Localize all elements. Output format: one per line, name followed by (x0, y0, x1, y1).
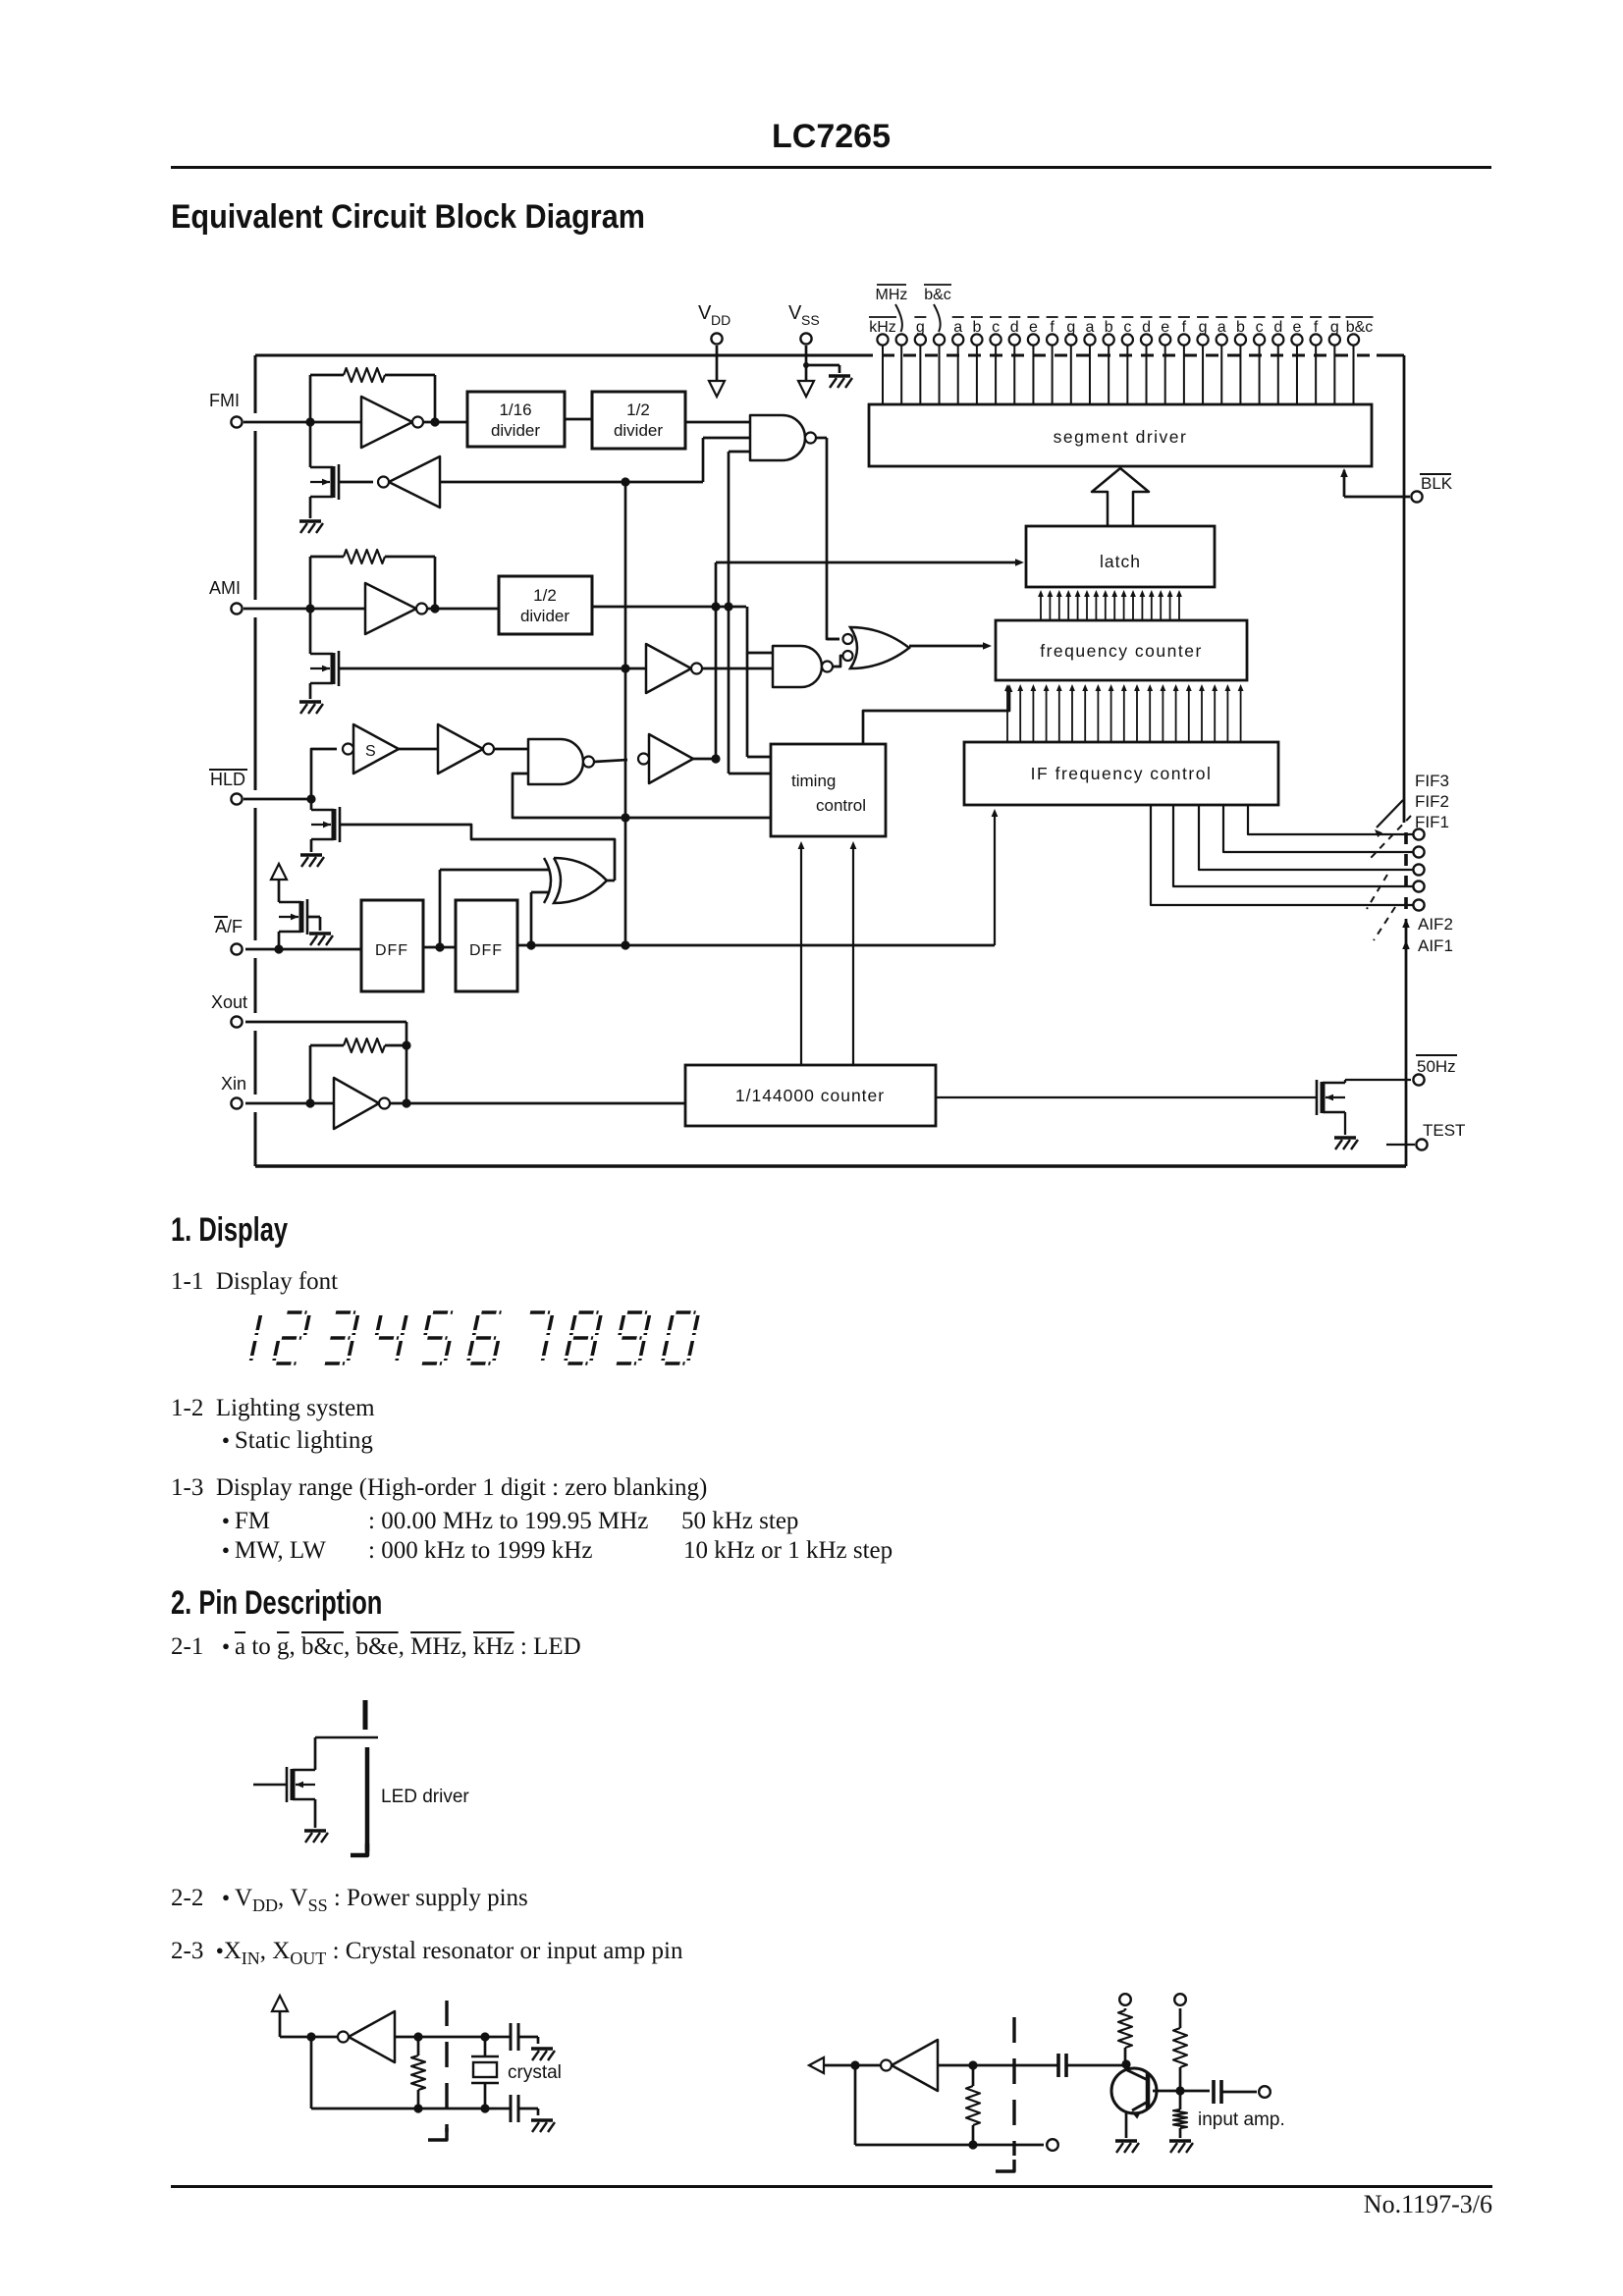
svg-text:LED driver: LED driver (381, 1787, 469, 1807)
svg-text:AMI: AMI (209, 578, 241, 598)
svg-text:1/2: 1/2 (626, 400, 650, 419)
svg-text:Xin: Xin (221, 1074, 246, 1094)
svg-text:b: b (1236, 319, 1245, 336)
svg-text:f: f (1314, 319, 1319, 336)
svg-text:g: g (1199, 319, 1208, 336)
svg-text:1/144000 counter: 1/144000 counter (735, 1086, 885, 1105)
svg-text:1/16: 1/16 (499, 400, 531, 419)
svg-text:FIF1: FIF1 (1415, 813, 1449, 831)
svg-text:latch: latch (1100, 552, 1141, 571)
svg-text:crystal: crystal (508, 2062, 562, 2083)
svg-text:HLD: HLD (210, 770, 245, 789)
svg-text:control: control (816, 796, 866, 815)
svg-text:b&c: b&c (1346, 319, 1374, 336)
svg-text:b&c: b&c (924, 287, 951, 303)
svg-text:divider: divider (491, 421, 540, 440)
svg-text:S: S (365, 743, 376, 760)
svg-text:segment driver: segment driver (1054, 427, 1188, 447)
svg-text:Xout: Xout (211, 992, 247, 1012)
svg-text:a: a (1086, 319, 1095, 336)
svg-text:FIF3: FIF3 (1415, 772, 1449, 790)
svg-text:a: a (953, 319, 962, 336)
svg-text:g: g (916, 319, 925, 336)
svg-text:input amp.: input amp. (1198, 2109, 1285, 2130)
svg-text:d: d (1273, 319, 1282, 336)
svg-text:A/F: A/F (215, 917, 243, 936)
svg-text:g: g (1330, 319, 1339, 336)
svg-text:BLK: BLK (1421, 474, 1453, 493)
svg-text:DFF: DFF (375, 942, 408, 959)
svg-text:c: c (1123, 319, 1131, 336)
svg-text:IF frequency control: IF frequency control (1031, 764, 1213, 783)
svg-text:e: e (1161, 319, 1169, 336)
svg-text:g: g (1066, 319, 1075, 336)
svg-text:divider: divider (520, 607, 569, 625)
svg-text:kHz: kHz (869, 319, 896, 336)
svg-text:SS: SS (801, 312, 820, 328)
svg-text:a: a (1217, 319, 1226, 336)
svg-text:FIF2: FIF2 (1415, 792, 1449, 811)
svg-text:d: d (1142, 319, 1151, 336)
svg-text:AIF2: AIF2 (1418, 915, 1453, 934)
svg-text:c: c (1256, 319, 1264, 336)
svg-text:d: d (1010, 319, 1019, 336)
svg-text:frequency counter: frequency counter (1040, 641, 1203, 661)
svg-text:FMI: FMI (209, 391, 240, 410)
svg-text:DD: DD (711, 312, 730, 328)
svg-text:V: V (788, 302, 802, 324)
svg-text:V: V (698, 302, 712, 324)
svg-text:AIF1: AIF1 (1418, 936, 1453, 955)
svg-text:e: e (1029, 319, 1038, 336)
svg-text:divider: divider (614, 421, 663, 440)
svg-text:TEST: TEST (1423, 1121, 1465, 1140)
svg-text:MHz: MHz (876, 287, 908, 303)
svg-text:DFF: DFF (469, 942, 503, 959)
svg-text:f: f (1050, 319, 1055, 336)
svg-text:50Hz: 50Hz (1417, 1057, 1456, 1076)
svg-text:b: b (1105, 319, 1113, 336)
svg-text:e: e (1293, 319, 1302, 336)
svg-text:1/2: 1/2 (533, 586, 557, 605)
svg-text:timing: timing (791, 772, 836, 790)
svg-text:b: b (972, 319, 981, 336)
svg-text:c: c (992, 319, 1000, 336)
svg-text:f: f (1182, 319, 1187, 336)
